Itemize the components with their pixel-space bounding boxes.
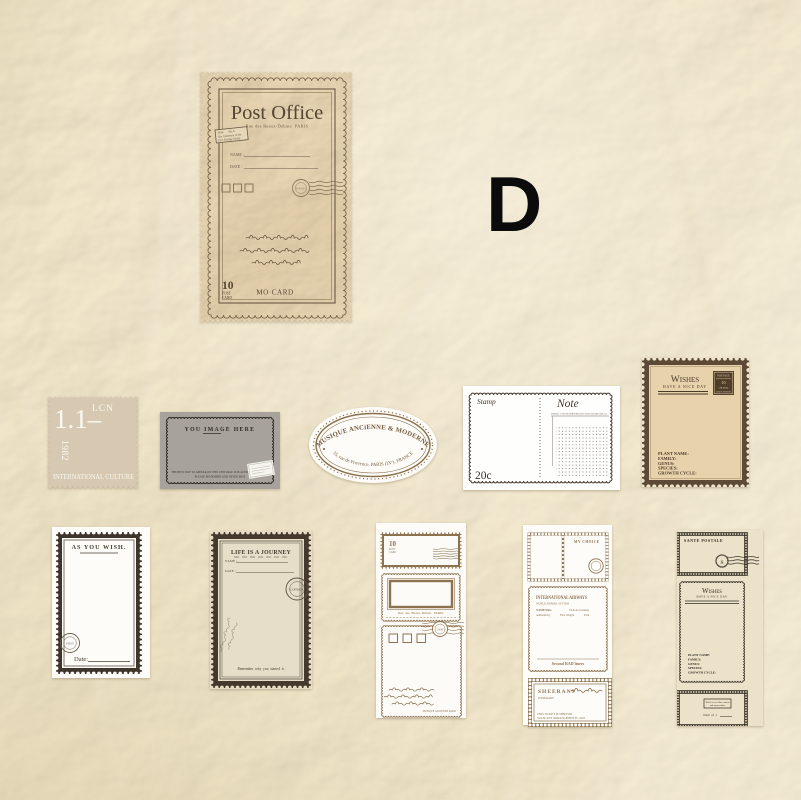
svg-text:PLANT NAME:: PLANT NAME: — [688, 653, 710, 657]
svg-text:HAVE IT NOW: HAVE IT NOW — [716, 391, 732, 394]
svg-text:10: 10 — [389, 540, 397, 548]
svg-text:NAME :: NAME : — [225, 559, 237, 563]
svg-text:10: 10 — [222, 280, 234, 292]
svg-text:Rue des Beaux-Débuts PARIS: Rue des Beaux-Débuts PARIS — [246, 124, 309, 129]
svg-text:1982: 1982 — [59, 440, 69, 461]
svg-text:DATE :: DATE : — [225, 569, 236, 573]
svg-text:MUSIQUE ANCIENNE PARIS: MUSIQUE ANCIENNE PARIS — [423, 710, 457, 713]
svg-text:SANTE POSTALE: SANTE POSTALE — [684, 538, 723, 543]
svg-text:LIFE IS A JOURNEY: LIFE IS A JOURNEY — [231, 550, 292, 556]
svg-text:Date:: Date: — [74, 656, 88, 663]
svg-text:Second RAD liners: Second RAD liners — [552, 661, 585, 666]
svg-text:SHEERANS: SHEERANS — [538, 689, 576, 695]
svg-text:Authenticity: Authenticity — [536, 613, 551, 617]
svg-text:INTERNATIONAL CULTURE: INTERNATIONAL CULTURE — [53, 472, 134, 481]
svg-text:POST: POST — [66, 642, 74, 646]
svg-text:TAX/Accounting: TAX/Accounting — [569, 608, 590, 612]
svg-text:Note: Note — [556, 398, 579, 410]
svg-text:POSTAGE: POSTAGE — [717, 374, 730, 378]
svg-text:HAVE A NICE DAY: HAVE A NICE DAY — [696, 596, 727, 599]
svg-text:Path: Path — [584, 613, 590, 617]
svg-text:MY CHOICE: MY CHOICE — [574, 540, 600, 544]
svg-text:DATE :: DATE : — [230, 164, 242, 169]
svg-text:LCN: LCN — [92, 404, 114, 414]
svg-text:20c: 20c — [475, 470, 492, 482]
svg-text:POST: POST — [222, 292, 232, 296]
svg-text:SPECIES:: SPECIES: — [688, 666, 702, 670]
svg-text:CARD: CARD — [222, 296, 232, 300]
svg-text:PARIS: PARIS — [296, 187, 306, 191]
svg-text:WORLD AIRMAIL SYSTEM: WORLD AIRMAIL SYSTEM — [536, 602, 569, 606]
svg-text:HAVE A NICE DAY: HAVE A NICE DAY — [663, 385, 707, 389]
svg-text:FAMILY:: FAMILY: — [688, 657, 701, 661]
svg-text:AIR MAIL: AIR MAIL — [718, 387, 729, 390]
svg-text:PLEASE REMEMBER AND NEVER MISS: PLEASE REMEMBER AND NEVER MISS — [195, 476, 246, 479]
svg-text:WISHES: WISHES — [671, 375, 700, 385]
svg-text:10: 10 — [721, 380, 725, 385]
svg-text:Remember why you started i: Remember why you started it. — [237, 667, 284, 671]
svg-text:GENUS:: GENUS: — [688, 662, 700, 666]
svg-text:MO·CARD: MO·CARD — [256, 289, 293, 297]
svg-text:INTERNATIONAL AIRWAYS: INTERNATIONAL AIRWAYS — [536, 596, 587, 601]
svg-text:YOU IMAGE HERE: YOU IMAGE HERE — [185, 427, 256, 433]
svg-text:GROWTH CYCLE:: GROWTH CYCLE: — [658, 471, 697, 476]
svg-text:ITINERARY: ITINERARY — [538, 696, 555, 700]
svg-text:WRITE A NOTE IMPORTANT AND SHA: WRITE A NOTE IMPORTANT AND SHARE IDEAS — [551, 413, 608, 416]
svg-text:and warm wishes: and warm wishes — [710, 705, 725, 707]
svg-text:NAME/Date: NAME/Date — [536, 608, 552, 612]
svg-text:LONDON: LONDON — [290, 588, 304, 592]
svg-text:Total of 1: Total of 1 — [703, 713, 718, 717]
svg-text:1936: 1936 — [437, 628, 444, 632]
svg-text:GROWTH CYCLE:: GROWTH CYCLE: — [688, 671, 716, 675]
svg-text:With Love to Offer content: With Love to Offer content — [706, 701, 730, 704]
svg-text:CARD: CARD — [389, 551, 396, 554]
svg-text:Post Office: Post Office — [231, 102, 323, 124]
svg-text:First Weight: First Weight — [560, 613, 574, 617]
svg-text:Stamp: Stamp — [477, 397, 496, 406]
svg-text:YOUR ANY ARRANGEMENTS. 2023: YOUR ANY ARRANGEMENTS. 2023 — [537, 716, 586, 720]
svg-text:S: S — [720, 560, 723, 566]
svg-text:AS YOU WISH.: AS YOU WISH. — [72, 544, 127, 551]
svg-text:NAME :: NAME : — [230, 152, 244, 157]
svg-text:Rue des Beaux–Débuts PARIS: Rue des Beaux–Débuts PARIS. — [398, 611, 444, 615]
